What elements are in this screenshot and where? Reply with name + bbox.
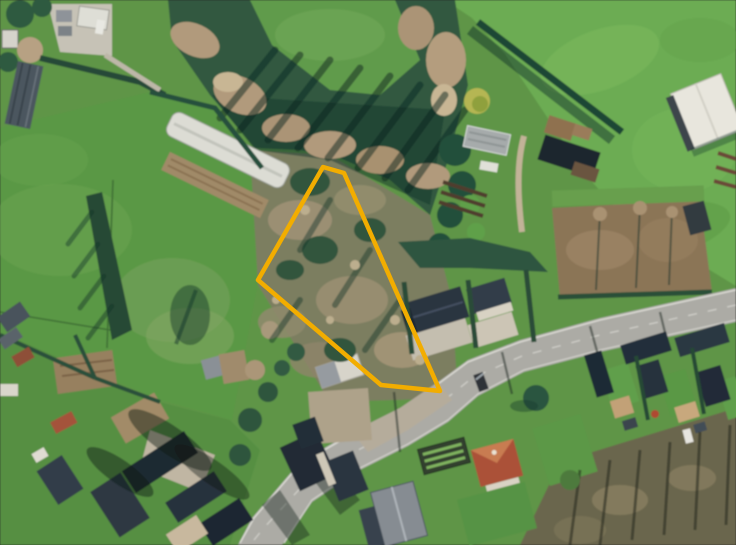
aerial-photo[interactable] (0, 0, 736, 545)
